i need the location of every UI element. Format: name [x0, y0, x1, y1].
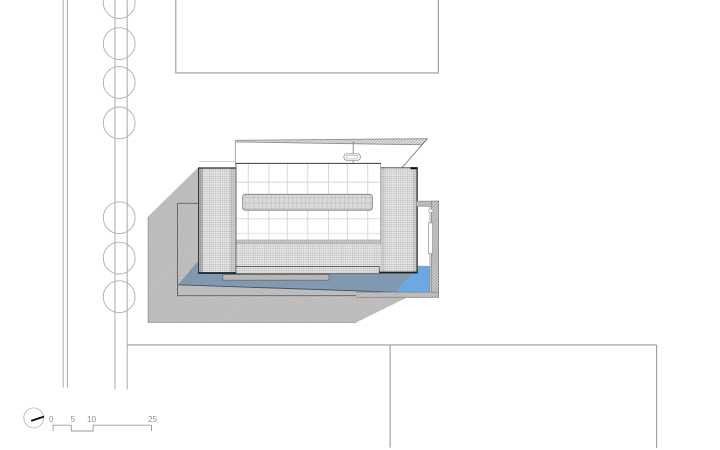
svg-text:0: 0 [49, 415, 54, 424]
svg-text:5: 5 [71, 415, 76, 424]
svg-text:10: 10 [87, 415, 97, 424]
svg-text:25: 25 [148, 415, 158, 424]
